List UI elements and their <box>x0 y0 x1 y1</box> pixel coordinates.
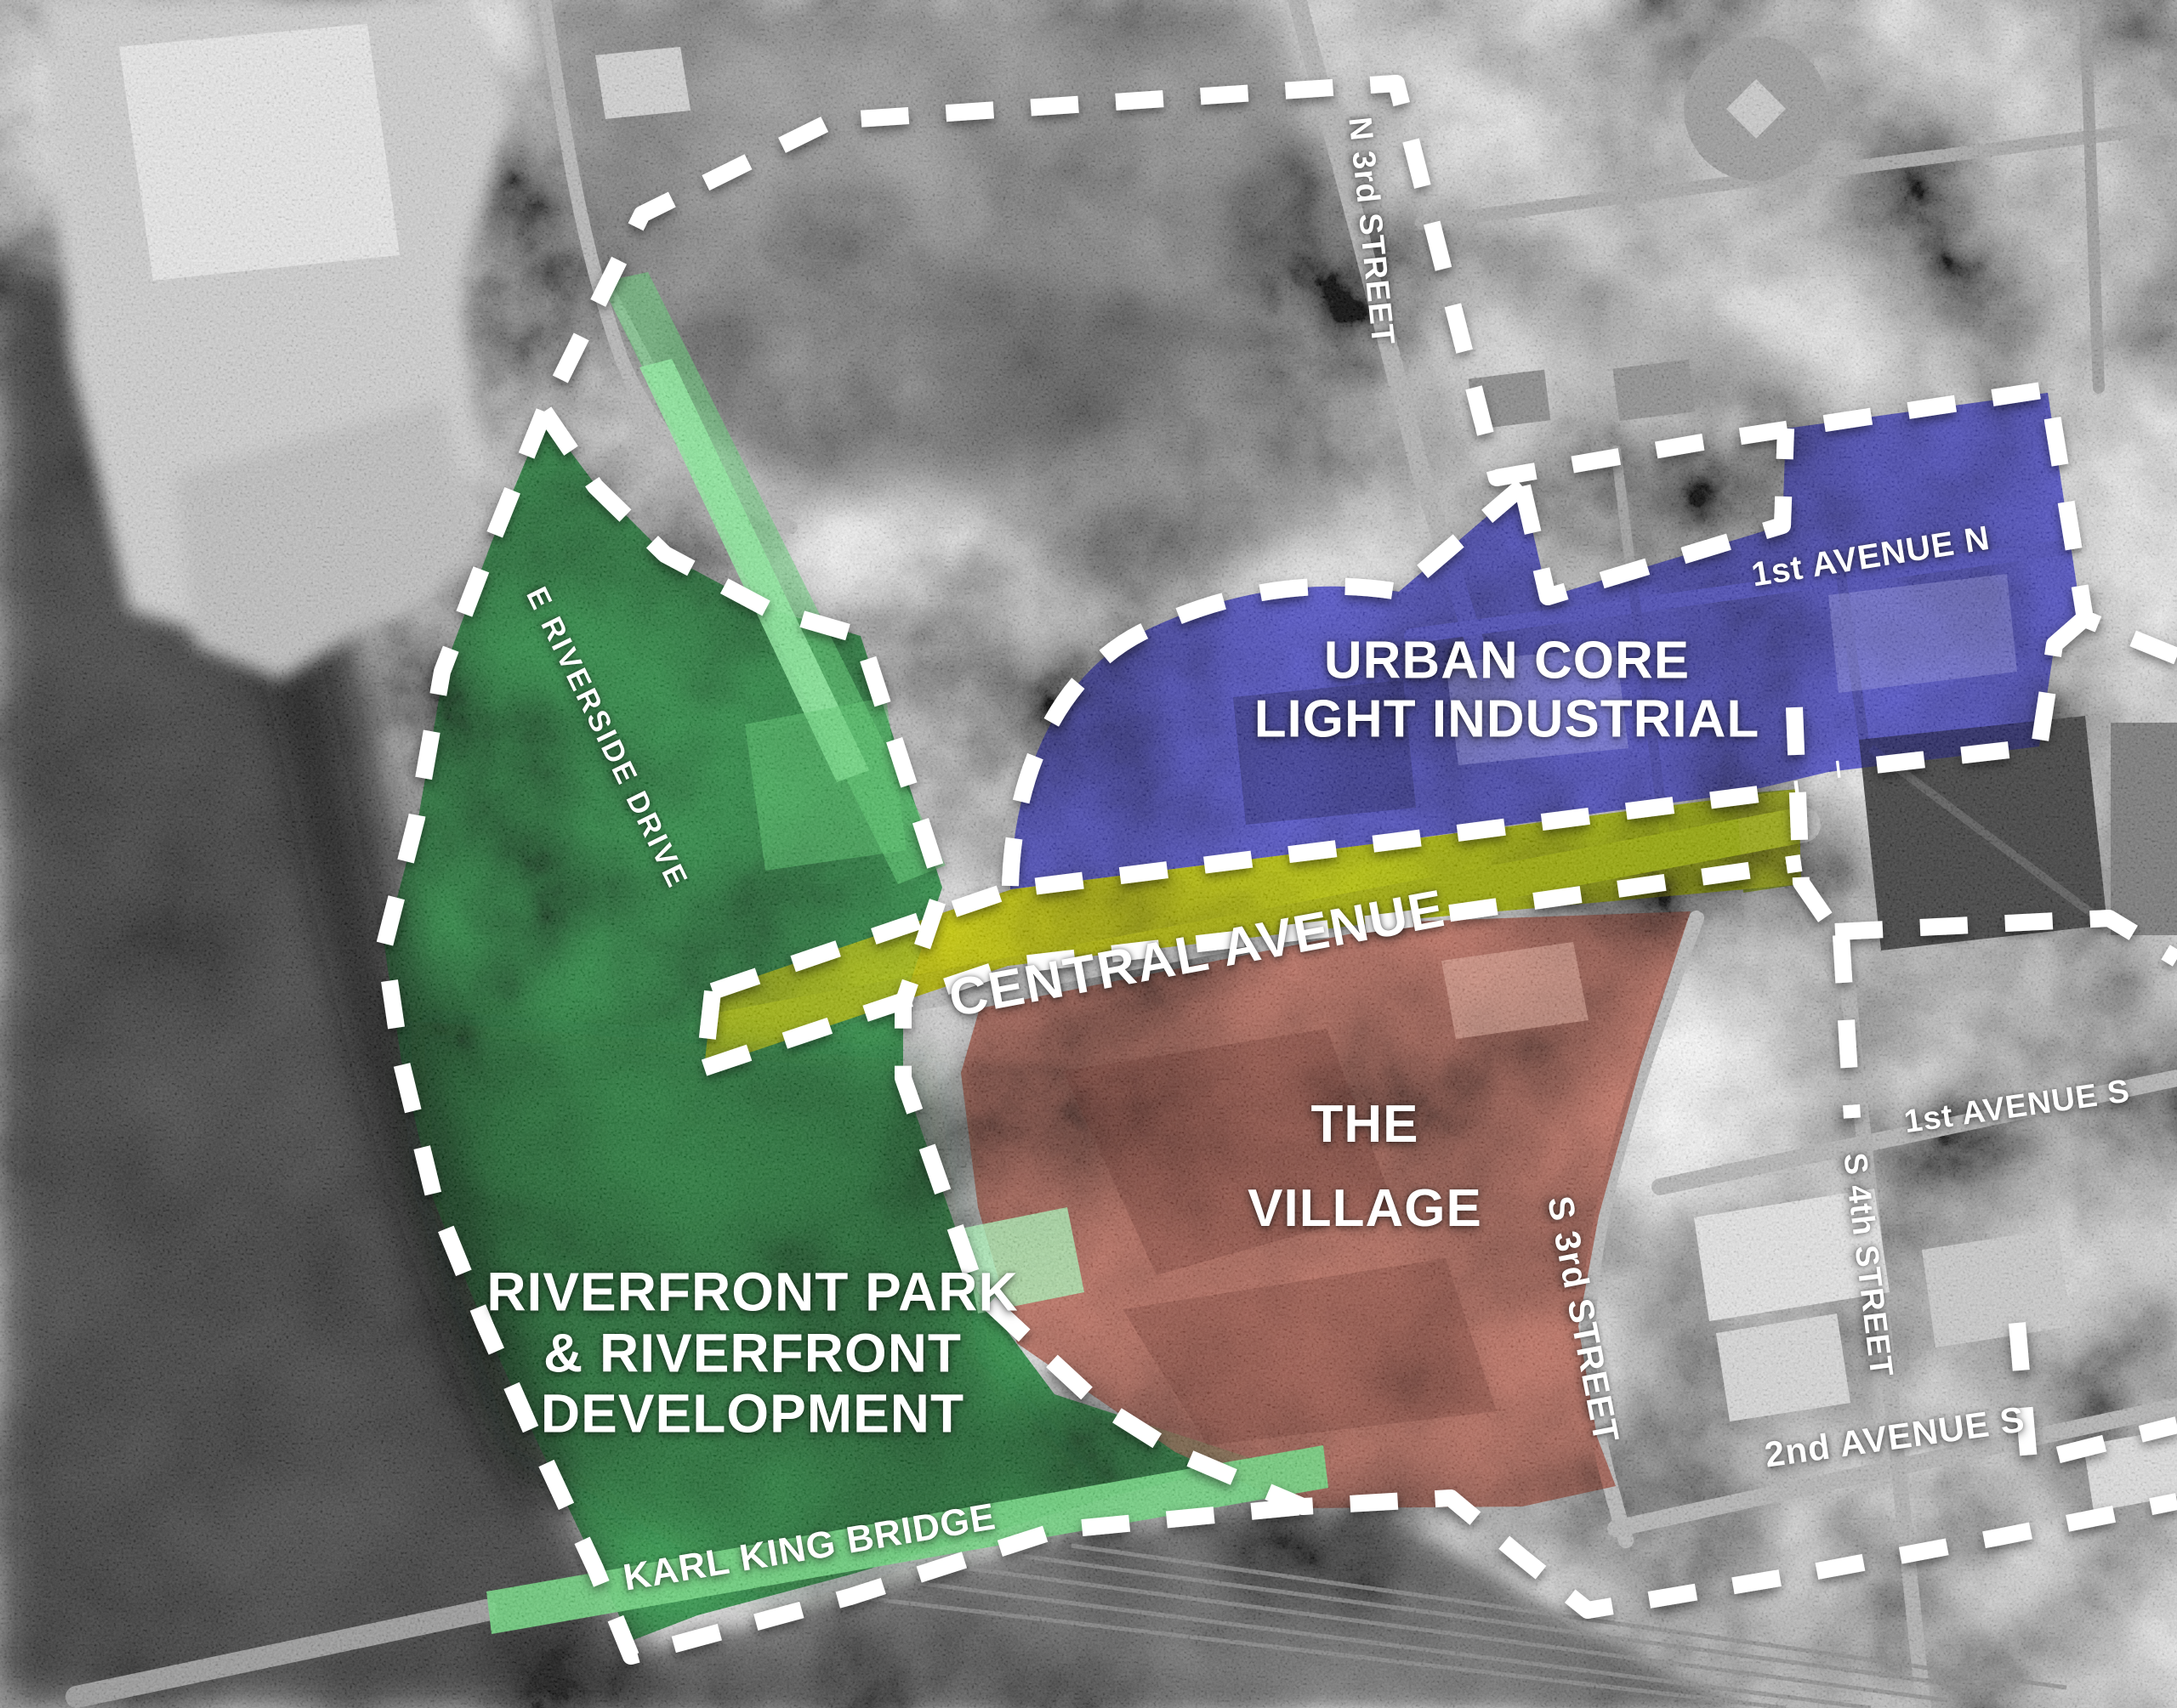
zone-label-riverfront-line2: & RIVERFRONT <box>486 1323 1018 1384</box>
zone-label-riverfront-line3: DEVELOPMENT <box>486 1384 1018 1445</box>
zone-label-riverfront: RIVERFRONT PARK & RIVERFRONT DEVELOPMENT <box>486 1262 1018 1444</box>
zone-label-urban-core-line1: URBAN CORE <box>1254 632 1760 690</box>
zone-label-the-village-line1: THE <box>1248 1082 1482 1166</box>
zone-label-riverfront-line1: RIVERFRONT PARK <box>486 1262 1018 1323</box>
planning-map: N 3rd STREET 1st AVENUE N URBAN CORE LIG… <box>0 0 2177 1708</box>
zone-label-urban-core: URBAN CORE LIGHT INDUSTRIAL <box>1254 632 1760 750</box>
zone-label-the-village: THE VILLAGE <box>1248 1082 1482 1251</box>
zone-label-the-village-line2: VILLAGE <box>1248 1166 1482 1251</box>
zone-label-urban-core-line2: LIGHT INDUSTRIAL <box>1254 690 1760 749</box>
